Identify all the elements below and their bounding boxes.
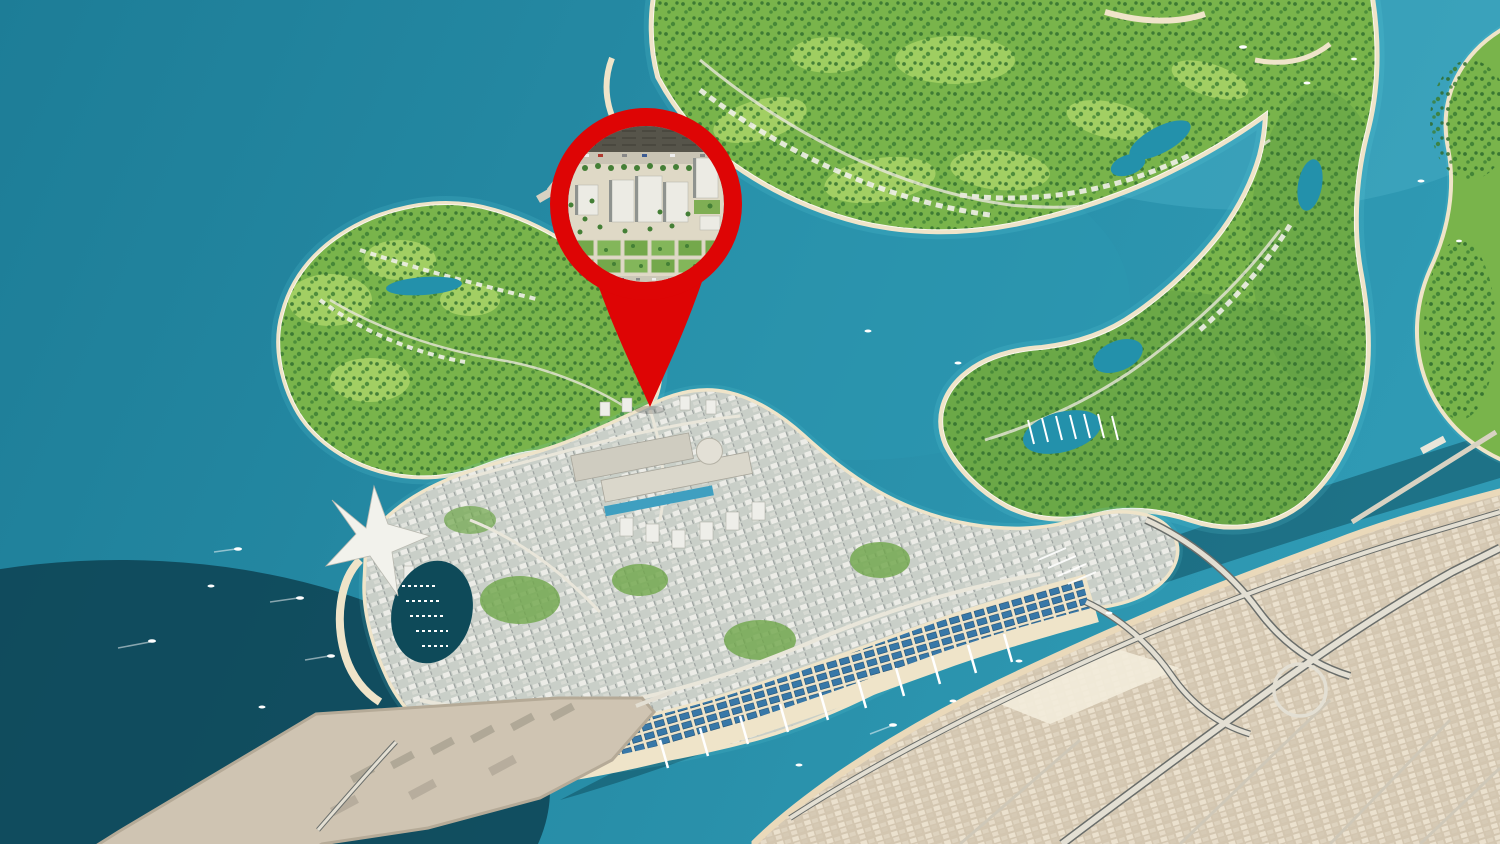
map-screenshot	[0, 0, 1500, 844]
pin-ground-shadow	[635, 406, 665, 414]
inset-lawn	[694, 200, 720, 214]
map-canvas[interactable]	[0, 0, 1500, 844]
